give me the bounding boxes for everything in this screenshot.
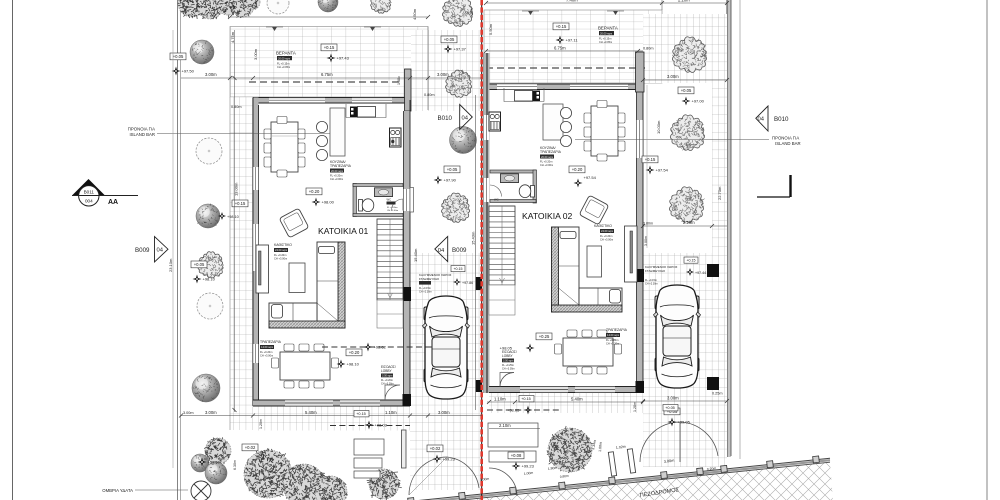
svg-text:20.00 sqm: 20.00 sqm xyxy=(278,56,290,60)
svg-text:+97.37: +97.37 xyxy=(454,47,467,52)
svg-text:ISLAND BAR: ISLAND BAR xyxy=(775,141,801,146)
svg-text:+0.20: +0.20 xyxy=(349,350,360,355)
svg-text:1.20m: 1.20m xyxy=(259,419,263,429)
svg-text:ΚΑΘΙΣΤΙΚΟ: ΚΑΘΙΣΤΙΚΟ xyxy=(594,224,612,228)
svg-text:WC: WC xyxy=(387,198,392,202)
svg-text:0.25m: 0.25m xyxy=(712,392,723,396)
svg-text:FL +0.05m: FL +0.05m xyxy=(387,207,398,209)
svg-text:FL +0.80m: FL +0.80m xyxy=(606,338,618,342)
svg-text:4.38m: 4.38m xyxy=(470,8,474,18)
svg-text:6.30m: 6.30m xyxy=(233,460,237,470)
svg-text:10.00m: 10.00m xyxy=(656,120,661,134)
svg-text:AA: AA xyxy=(108,199,118,206)
svg-text:5.40m: 5.40m xyxy=(305,410,317,415)
svg-text:ΤΡΑΠΕΖΑΡΙΑ: ΤΡΑΠΕΖΑΡΙΑ xyxy=(540,150,562,154)
svg-text:004: 004 xyxy=(85,199,93,204)
svg-text:22.70m: 22.70m xyxy=(717,186,722,200)
svg-text:3.00 sqm: 3.00 sqm xyxy=(503,360,513,363)
svg-text:+99.23: +99.23 xyxy=(522,464,535,469)
svg-text:+0.15: +0.15 xyxy=(645,157,656,162)
svg-text:20.00 sqm: 20.00 sqm xyxy=(600,31,612,35)
svg-text:5.50m: 5.50m xyxy=(488,23,493,35)
svg-text:1.10m: 1.10m xyxy=(494,397,506,402)
svg-text:ΚΑΤΟΙΚΙΑ 01: ΚΑΤΟΙΚΙΑ 01 xyxy=(318,226,369,236)
svg-text:24.00 sqm: 24.00 sqm xyxy=(601,229,613,233)
svg-text:+98.10: +98.10 xyxy=(203,277,216,282)
svg-text:B010: B010 xyxy=(438,115,453,122)
svg-text:20.00 sqm: 20.00 sqm xyxy=(331,169,343,173)
svg-text:ΠΡΟΝΟΙΑ ΓΙΑ: ΠΡΟΝΟΙΑ ΓΙΑ xyxy=(772,136,799,141)
svg-text:+0.02: +0.02 xyxy=(245,445,256,450)
svg-text:+98.00: +98.00 xyxy=(322,200,335,205)
svg-text:FL +0.20m: FL +0.20m xyxy=(600,234,612,238)
svg-text:3.00m: 3.00m xyxy=(438,410,450,415)
svg-text:ΒΕΡΑΝΤΑ: ΒΕΡΑΝΤΑ xyxy=(276,51,296,56)
svg-text:FL +0.20m: FL +0.20m xyxy=(274,253,286,257)
svg-text:+0.08: +0.08 xyxy=(511,453,522,458)
svg-text:+97.00: +97.00 xyxy=(692,99,705,104)
svg-text:5.40m: 5.40m xyxy=(571,397,583,402)
svg-text:ΒΕΡΑΝΤΑ: ΒΕΡΑΝΤΑ xyxy=(598,26,618,31)
svg-text:3.00 sqm: 3.00 sqm xyxy=(382,375,392,378)
svg-text:+0.20: +0.20 xyxy=(572,167,583,172)
svg-text:+0.15: +0.15 xyxy=(453,267,462,271)
svg-text:13.00m: 13.00m xyxy=(234,182,239,196)
svg-text:LOBBY: LOBBY xyxy=(381,369,393,373)
svg-text:+97.90: +97.90 xyxy=(444,178,457,183)
svg-text:CH +2.40m: CH +2.40m xyxy=(387,210,398,212)
svg-text:+99.50: +99.50 xyxy=(208,460,221,465)
svg-text:3.00m: 3.00m xyxy=(644,236,648,246)
svg-text:B011: B011 xyxy=(84,190,95,195)
svg-text:FL +0.20m: FL +0.20m xyxy=(540,160,552,164)
svg-text:14.00 sqm: 14.00 sqm xyxy=(607,333,619,337)
svg-text:ΤΡΑΠΕΖΑΡΙΑ: ΤΡΑΠΕΖΑΡΙΑ xyxy=(260,340,282,344)
svg-text:+0.25: +0.25 xyxy=(539,334,550,339)
svg-text:LOBBY: LOBBY xyxy=(502,354,514,358)
svg-text:ISLAND BAR: ISLAND BAR xyxy=(129,132,155,137)
svg-text:1.38v: 1.38v xyxy=(397,76,401,85)
svg-text:ΚΑΘΙΣΤΙΚΟ: ΚΑΘΙΣΤΙΚΟ xyxy=(274,243,292,247)
svg-text:15.43m: 15.43m xyxy=(471,231,476,245)
svg-text:+0.15: +0.15 xyxy=(235,201,246,206)
svg-text:3.00m: 3.00m xyxy=(667,396,679,401)
svg-text:+0.02: +0.02 xyxy=(430,446,441,451)
svg-text:+97.44: +97.44 xyxy=(695,271,706,275)
svg-text:20.00 sqm: 20.00 sqm xyxy=(541,155,553,159)
svg-text:ΣΤΑΘΜΕΥΣΗΣ: ΣΤΑΘΜΕΥΣΗΣ xyxy=(419,277,439,281)
svg-text:04: 04 xyxy=(438,248,445,254)
svg-text:+97.54: +97.54 xyxy=(656,168,669,173)
svg-text:B009: B009 xyxy=(135,247,150,254)
svg-text:+98.10: +98.10 xyxy=(227,215,239,219)
svg-text:CH +3.20m: CH +3.20m xyxy=(606,342,619,346)
svg-text:CH +3.00m: CH +3.00m xyxy=(600,238,613,242)
svg-text:+99.05: +99.05 xyxy=(678,420,691,425)
svg-text:ΤΡΑΠΕΖΑΡΙΑ: ΤΡΑΠΕΖΑΡΙΑ xyxy=(606,328,628,332)
svg-text:15.40m: 15.40m xyxy=(413,248,418,262)
svg-text:1.28m: 1.28m xyxy=(633,402,637,412)
svg-text:04: 04 xyxy=(157,248,164,254)
svg-text:3.00m: 3.00m xyxy=(253,48,258,60)
svg-text:CH +2.30m: CH +2.30m xyxy=(419,291,432,294)
svg-text:04: 04 xyxy=(462,116,469,122)
svg-text:+0.20: +0.20 xyxy=(309,189,320,194)
svg-text:+98.05: +98.05 xyxy=(500,346,513,351)
svg-text:+0.05: +0.05 xyxy=(194,262,205,267)
svg-text:+0.05: +0.05 xyxy=(681,88,692,93)
svg-text:FL +0.20m: FL +0.20m xyxy=(260,350,272,354)
svg-text:ΤΡΑΠΕΖΑΡΙΑ: ΤΡΑΠΕΖΑΡΙΑ xyxy=(330,164,352,168)
svg-text:+0.05: +0.05 xyxy=(173,54,184,59)
svg-text:14.00 sqm: 14.00 sqm xyxy=(261,345,273,349)
svg-text:CH +3.00m: CH +3.00m xyxy=(540,163,553,167)
svg-text:+99.23: +99.23 xyxy=(443,457,456,462)
svg-text:3.00m: 3.00m xyxy=(667,74,679,79)
svg-text:CH +3.05m: CH +3.05m xyxy=(277,65,290,69)
svg-text:+0.05: +0.05 xyxy=(665,406,675,410)
svg-text:B009: B009 xyxy=(452,247,467,254)
svg-text:3.00m: 3.00m xyxy=(205,410,217,415)
svg-text:CH +3.00m: CH +3.00m xyxy=(381,383,394,386)
svg-text:4.50m: 4.50m xyxy=(412,8,417,20)
svg-text:2.20m: 2.20m xyxy=(678,0,690,3)
svg-text:CH +2.30m: CH +2.30m xyxy=(645,283,658,286)
svg-text:CH +3.05m: CH +3.05m xyxy=(599,40,612,44)
svg-text:FL +0.15m: FL +0.15m xyxy=(277,62,289,66)
svg-text:CH +3.00m: CH +3.00m xyxy=(330,177,343,181)
svg-text:+0.15: +0.15 xyxy=(686,258,695,262)
svg-text:CH +3.05m: CH +3.05m xyxy=(502,368,515,371)
svg-text:ΚΑΤΟΙΚΙΑ 02: ΚΑΤΟΙΚΙΑ 02 xyxy=(522,211,573,221)
svg-text:WC: WC xyxy=(494,198,499,202)
svg-text:0.80m: 0.80m xyxy=(643,222,653,226)
svg-text:+0.15: +0.15 xyxy=(521,397,531,401)
svg-text:0.80m: 0.80m xyxy=(424,93,435,97)
svg-text:B010: B010 xyxy=(774,116,789,123)
svg-text:2.20m: 2.20m xyxy=(683,220,695,225)
svg-text:ΠΡΟΝΟΙΑ ΓΙΑ: ΠΡΟΝΟΙΑ ΓΙΑ xyxy=(128,127,155,132)
svg-text:+97.11: +97.11 xyxy=(566,38,579,43)
svg-text:CH +3.00m: CH +3.00m xyxy=(274,257,287,261)
svg-text:1.10m: 1.10m xyxy=(385,410,397,415)
svg-text:3.00m: 3.00m xyxy=(437,72,449,77)
svg-text:+97.54: +97.54 xyxy=(584,175,597,180)
svg-text:+97.43: +97.43 xyxy=(337,56,350,61)
svg-text:7.40m: 7.40m xyxy=(566,0,578,3)
svg-text:0.80m: 0.80m xyxy=(643,47,654,51)
svg-text:ΣΤΑΘΜΕΥΣΗΣ: ΣΤΑΘΜΕΥΣΗΣ xyxy=(645,269,665,273)
svg-text:23.10m: 23.10m xyxy=(168,258,173,272)
svg-text:FL +0.20m: FL +0.20m xyxy=(330,174,342,178)
svg-text:0.80m: 0.80m xyxy=(231,105,242,109)
svg-text:3.00m: 3.00m xyxy=(205,72,217,77)
svg-text:+97.50: +97.50 xyxy=(182,69,195,74)
svg-text:+0.05: +0.05 xyxy=(447,167,458,172)
svg-text:24.00 sqm: 24.00 sqm xyxy=(275,248,287,252)
svg-text:ΟΜΒΡΙΑ ΥΔΑΤΑ: ΟΜΒΡΙΑ ΥΔΑΤΑ xyxy=(102,488,133,493)
svg-text:+98.10: +98.10 xyxy=(347,362,360,367)
svg-text:+0.15: +0.15 xyxy=(356,412,366,416)
svg-text:CH +3.00m: CH +3.00m xyxy=(260,354,273,358)
svg-text:+97.86: +97.86 xyxy=(462,281,473,285)
svg-text:04: 04 xyxy=(758,117,765,123)
svg-text:3.00m: 3.00m xyxy=(183,411,194,415)
svg-text:6.75m: 6.75m xyxy=(321,72,333,77)
svg-text:+0.05: +0.05 xyxy=(444,37,455,42)
svg-text:+0.15: +0.15 xyxy=(556,24,567,29)
svg-text:+0.15: +0.15 xyxy=(324,45,335,50)
svg-text:FL +0.15m: FL +0.15m xyxy=(599,37,611,41)
svg-text:+98.62: +98.62 xyxy=(374,345,387,350)
svg-text:2.10m: 2.10m xyxy=(499,423,511,428)
svg-text:6.75m: 6.75m xyxy=(554,46,566,51)
